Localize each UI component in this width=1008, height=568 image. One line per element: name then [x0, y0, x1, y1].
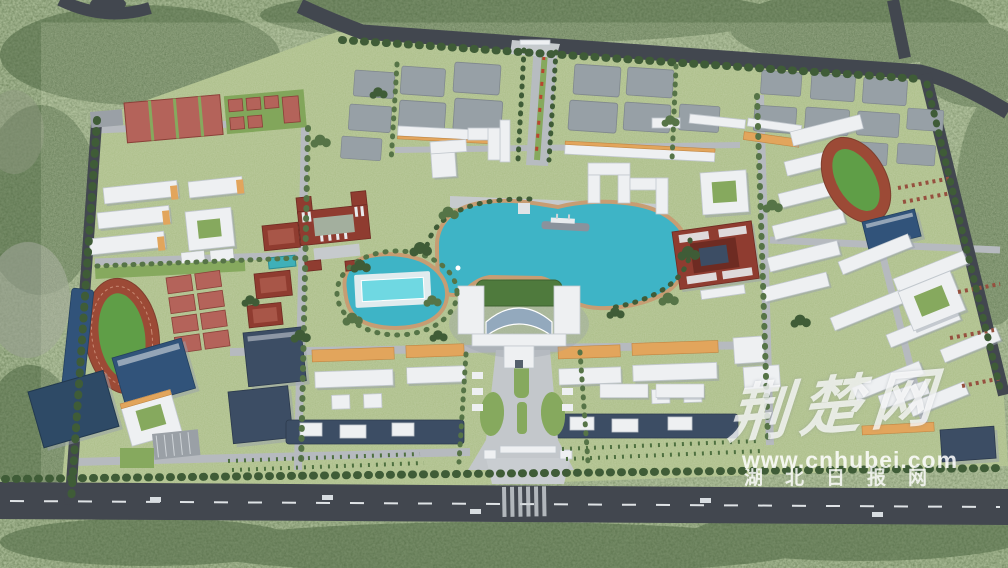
gate-beam — [500, 446, 556, 453]
north-gate — [520, 40, 550, 45]
glass-hall-band-west — [286, 420, 464, 444]
tower-west — [458, 286, 484, 334]
scene-canvas — [0, 0, 1008, 568]
small-pool-court — [268, 255, 296, 269]
fountain — [456, 266, 461, 271]
courtyard-building-west — [185, 207, 237, 254]
green-roof-terrace — [476, 280, 562, 306]
pier — [518, 203, 530, 214]
tower-east — [554, 286, 580, 334]
gate-booth-west — [484, 450, 496, 459]
glass-building-southeast — [940, 426, 999, 466]
parking-southwest — [152, 429, 200, 460]
swimming-pool — [354, 271, 432, 308]
campus-aerial-rendering: 荆楚网 www.cnhubei.com 湖北日报网 — [0, 0, 1008, 568]
colonnade — [472, 334, 566, 346]
green-plaza — [120, 448, 154, 468]
